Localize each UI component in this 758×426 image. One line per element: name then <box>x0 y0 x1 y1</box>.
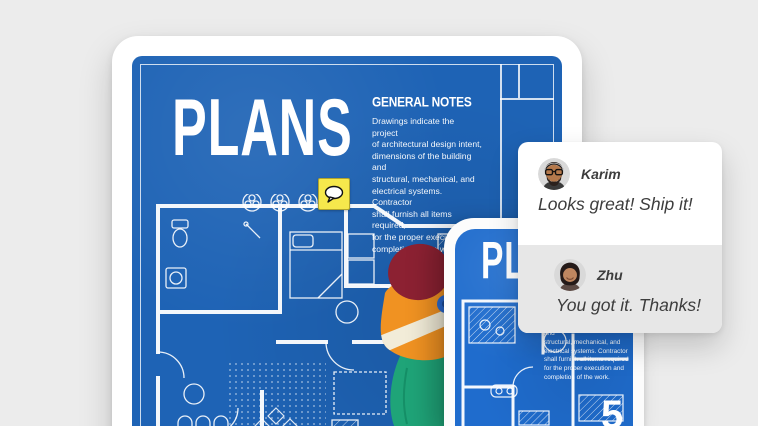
comment-row-karim: Karim <box>538 158 621 190</box>
karim-avatar <box>538 158 570 190</box>
commenter-name: Zhu <box>597 267 623 283</box>
comment-sticker[interactable] <box>318 178 350 210</box>
zhu-avatar <box>554 259 586 291</box>
stage: PLANS GENERAL NOTES Drawings indicate th… <box>0 0 758 426</box>
commenter-name: Karim <box>581 166 621 182</box>
notes-line: of architectural design intent, <box>372 139 482 151</box>
blueprint-title: PLANS <box>172 82 353 174</box>
notes-line: Drawings indicate the project <box>372 116 482 139</box>
comment-row-zhu: Zhu <box>554 259 623 291</box>
speech-bubble-icon <box>323 185 345 203</box>
comment-text-zhu: You got it. Thanks! <box>556 295 701 316</box>
worker-character <box>373 238 455 426</box>
reply-section: Zhu You got it. Thanks! <box>518 245 722 333</box>
general-notes-heading: GENERAL NOTES <box>372 94 477 110</box>
title-block-cell-line <box>518 64 520 98</box>
notes-line: structural, mechanical, and <box>372 174 482 186</box>
notes-line: dimensions of the building and <box>372 151 482 174</box>
comment-thread-card[interactable]: Karim Looks great! Ship it! Zhu You got <box>518 142 722 333</box>
title-block-horizontal-line <box>500 98 554 100</box>
sheet-number: 5 <box>601 393 623 426</box>
comment-text-karim: Looks great! Ship it! <box>538 194 693 215</box>
